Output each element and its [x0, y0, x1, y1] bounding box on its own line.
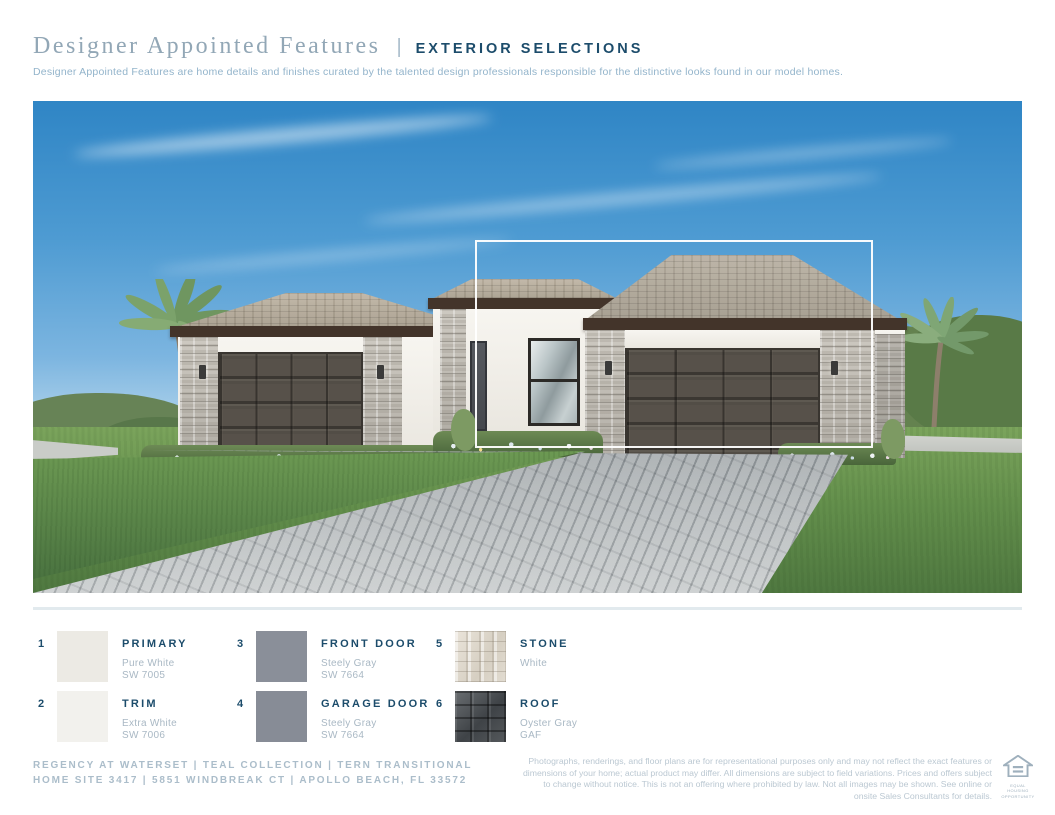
selection-color-code: SW 7006: [122, 730, 177, 742]
page-title: Designer Appointed Features: [33, 33, 380, 60]
selection-swatch: [57, 691, 108, 742]
selection-swatch: [455, 691, 506, 742]
selections-legend: 1 PRIMARY Pure White SW 7005 2 TRIM Extr…: [38, 631, 577, 751]
selection-color-name: Steely Gray: [321, 718, 430, 730]
selection-color-code: SW 7005: [122, 670, 188, 682]
selection-color-name: Steely Gray: [321, 658, 417, 670]
selection-label: FRONT DOOR: [321, 638, 417, 650]
selection-item: 4 GARAGE DOOR Steely Gray SW 7664: [237, 691, 436, 742]
title-divider: |: [396, 36, 401, 59]
brochure-page: Designer Appointed Features | EXTERIOR S…: [0, 0, 1055, 815]
selection-item: 3 FRONT DOOR Steely Gray SW 7664: [237, 631, 436, 682]
selection-number: 4: [237, 691, 256, 742]
section-divider: [33, 607, 1022, 610]
home-rendering: [33, 101, 1022, 593]
selection-label: STONE: [520, 638, 569, 650]
footer-community-block: REGENCY AT WATERSET | TEAL COLLECTION | …: [33, 758, 472, 788]
highlight-rectangle: [475, 240, 873, 448]
selection-label: PRIMARY: [122, 638, 188, 650]
selection-color-name: Oyster Gray: [520, 718, 577, 730]
selection-item: 2 TRIM Extra White SW 7006: [38, 691, 237, 742]
header: Designer Appointed Features | EXTERIOR S…: [33, 33, 643, 60]
selection-number: 1: [38, 631, 57, 682]
disclaimer-text: Photographs, renderings, and floor plans…: [522, 756, 992, 802]
selection-number: 2: [38, 691, 57, 742]
selection-color-code: SW 7664: [321, 670, 417, 682]
selection-number: 5: [436, 631, 455, 682]
equal-housing-house-icon: [1003, 755, 1033, 777]
selection-item: 6 ROOF Oyster Gray GAF: [436, 691, 577, 742]
selection-number: 6: [436, 691, 455, 742]
selection-color-code: SW 7664: [321, 730, 430, 742]
stone-pillar: [363, 337, 402, 455]
stone-pillar: [180, 337, 218, 455]
selection-label: ROOF: [520, 698, 577, 710]
tall-grass: [451, 409, 477, 451]
selection-color-name: Extra White: [122, 718, 177, 730]
selection-swatch: [57, 631, 108, 682]
selection-item: 1 PRIMARY Pure White SW 7005: [38, 631, 237, 682]
sconce-light: [377, 365, 384, 379]
community-line: REGENCY AT WATERSET | TEAL COLLECTION | …: [33, 758, 472, 773]
equal-housing-label-2: OPPORTUNITY: [999, 794, 1037, 799]
equal-housing-logo: EQUAL HOUSING OPPORTUNITY: [999, 755, 1037, 799]
equal-housing-label-1: EQUAL HOUSING: [999, 783, 1037, 793]
selection-swatch: [455, 631, 506, 682]
header-description: Designer Appointed Features are home det…: [33, 66, 843, 78]
selection-color-name: White: [520, 658, 569, 670]
selection-color-name: Pure White: [122, 658, 188, 670]
tall-grass: [881, 419, 905, 459]
selection-label: GARAGE DOOR: [321, 698, 430, 710]
address-line: HOME SITE 3417 | 5851 WINDBREAK CT | APO…: [33, 773, 472, 788]
selection-label: TRIM: [122, 698, 177, 710]
selection-swatch: [256, 691, 307, 742]
selection-item: 5 STONE White: [436, 631, 577, 682]
section-title: EXTERIOR SELECTIONS: [416, 41, 644, 57]
selection-swatch: [256, 631, 307, 682]
garage-door-left: [218, 352, 363, 451]
sconce-light: [199, 365, 206, 379]
selection-number: 3: [237, 631, 256, 682]
selection-color-code: GAF: [520, 730, 577, 742]
